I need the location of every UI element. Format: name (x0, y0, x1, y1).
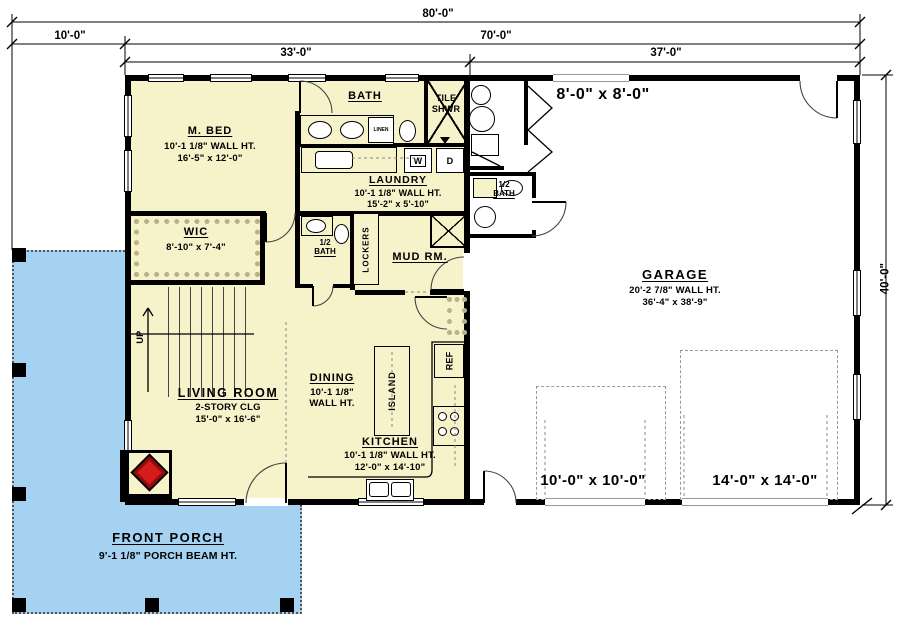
kitchen-sink-basin (369, 482, 389, 497)
dryer-label: D (447, 156, 454, 166)
room-label-bath: BATH (325, 90, 405, 103)
tile-shwr-line1: TILE (424, 93, 468, 103)
kitchen-size: 12'-0" x 14'-10" (332, 463, 448, 474)
porch-post (145, 598, 159, 612)
interior-wall (260, 211, 265, 285)
mbed-size: 16'-5" x 12'-0" (138, 154, 282, 165)
window (853, 100, 861, 144)
water-heater (471, 85, 491, 105)
interior-wall (128, 211, 266, 216)
bath-sink (340, 121, 364, 139)
window (288, 74, 326, 82)
window (210, 74, 252, 82)
dim-main: 70'-0" (456, 30, 536, 43)
garage-utility-wall (524, 81, 528, 145)
room-label-kitchen: KITCHEN (332, 436, 448, 449)
garage-door1-opening (545, 498, 645, 506)
garage-halfbath-sink (474, 206, 496, 228)
window (124, 95, 132, 137)
island: ISLAND (374, 346, 410, 436)
tile-shwr-line2: SHWR (424, 104, 468, 114)
bath-sink (308, 121, 332, 139)
dim-overall: 80'-0" (398, 8, 478, 21)
room-label-porch: FRONT PORCH (98, 531, 238, 546)
shower-door-marker (440, 137, 450, 144)
laundry-size: 15'-2" x 5'-10" (328, 199, 468, 209)
interior-wall (295, 284, 313, 288)
linen-cabinet: LINEN (368, 117, 394, 143)
washer: W (404, 148, 432, 173)
garage-door1-size: 10'-0" x 10'-0" (538, 472, 648, 489)
room-label-mudrm: MUD RM. (378, 251, 462, 264)
floor-plan: LOCKERS UP W D LINEN ISLAND REF (0, 0, 900, 624)
kitchen-sink-basin (391, 482, 411, 497)
porch-post (12, 363, 26, 377)
interior-wall (430, 290, 467, 295)
halfbath-sink (306, 219, 326, 233)
garage-rear-door-size: 8'-0" x 8'-0" (548, 86, 658, 104)
porch-post (12, 598, 26, 612)
halfbath-label-2: BATH (303, 247, 347, 256)
interior-wall (295, 211, 300, 288)
living-size: 15'-0" x 16'-6" (158, 415, 298, 426)
washer-label: W (410, 155, 427, 167)
kitchen-wall-ht: 10'-1 1/8" WALL HT. (326, 451, 454, 462)
garage-door2-opening (682, 498, 828, 506)
garage-halfbath-wall (532, 172, 536, 198)
window (178, 498, 236, 506)
window (124, 150, 132, 192)
linen-label: LINEN (374, 127, 389, 133)
garage-halfbath-wall (470, 234, 536, 238)
room-label-mbed: M. BED (145, 125, 275, 138)
window (148, 74, 184, 82)
dining-ht2: WALL HT. (300, 399, 364, 410)
stairs-up-label: UP (135, 325, 145, 349)
porch-post (280, 598, 294, 612)
window (853, 270, 861, 316)
interior-wall (333, 284, 355, 288)
bath-toilet (399, 120, 416, 142)
mbed-wall-ht: 10'-1 1/8" WALL HT. (138, 142, 282, 153)
garage-top-door-opening (800, 74, 837, 82)
front-door-opening (244, 498, 288, 506)
dim-garage-depth: 40'-0" (879, 247, 892, 311)
window (385, 74, 419, 82)
staircase-treads (158, 287, 254, 397)
room-label-garage: GARAGE (625, 268, 725, 283)
room-label-dining: DINING (300, 372, 364, 385)
garage-door2-size: 14'-0" x 14'-0" (697, 472, 833, 489)
dim-house-width: 33'-0" (256, 47, 336, 60)
ref-label: REF (444, 352, 454, 371)
dim-garage-width: 37'-0" (626, 47, 706, 60)
dryer: D (436, 148, 464, 173)
room-label-wic: WIC (151, 226, 241, 239)
wic-size: 8'-10" x 7'-4" (141, 243, 251, 254)
lockers-label: LOCKERS (362, 226, 371, 272)
mudroom-garage-door-opening (463, 253, 471, 291)
garage-size: 36'-4" x 38'-9" (618, 298, 732, 309)
room-label-living: LIVING ROOM (158, 386, 298, 400)
garage-wall-ht: 20'-2 7/8" WALL HT. (612, 286, 738, 297)
interior-wall (355, 290, 405, 295)
lockers-cabinet: LOCKERS (353, 213, 379, 285)
porch-post (12, 487, 26, 501)
laundry-wall-ht: 10'-1 1/8" WALL HT. (328, 188, 468, 198)
window (853, 374, 861, 420)
island-label: ISLAND (387, 371, 397, 411)
room-label-laundry: LAUNDRY (328, 174, 468, 186)
garage-halfbath-label-1: 1/2 (482, 180, 526, 189)
water-softener (469, 106, 495, 132)
halfbath-label-1: 1/2 (303, 238, 347, 247)
dim-porch-depth: 10'-0" (38, 30, 102, 43)
garage-utility-wall (470, 166, 504, 170)
interior-wall (128, 280, 265, 285)
garage-rear-door-opening (553, 74, 629, 82)
pantry-shelving (447, 297, 467, 335)
porch-beam-ht: 9'-1 1/8" PORCH BEAM HT. (83, 550, 253, 562)
living-clg: 2-STORY CLG (158, 403, 298, 414)
refrigerator: REF (434, 344, 464, 378)
mudroom-closet (430, 214, 467, 248)
garage-service-door-opening (484, 498, 516, 506)
laundry-sink (315, 151, 353, 169)
garage-halfbath-label-2: BATH (482, 189, 526, 198)
porch-post (12, 248, 26, 262)
garage-halfbath-wall (470, 172, 536, 176)
utility-freezer (471, 134, 499, 156)
